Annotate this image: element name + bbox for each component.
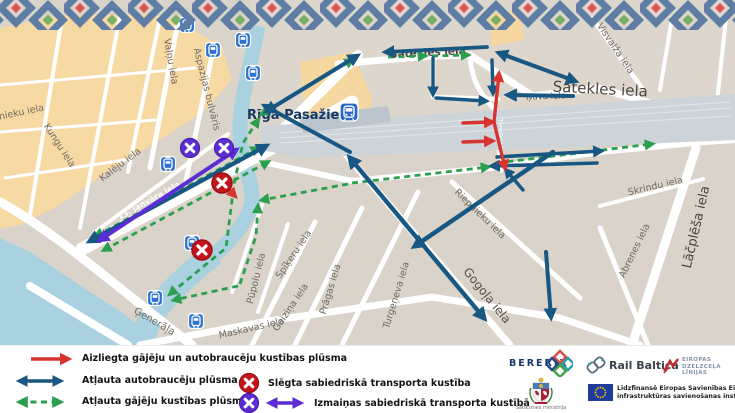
transport-change-icon bbox=[238, 392, 260, 413]
tram-stop-icon bbox=[206, 43, 221, 58]
latvia-coat-of-arms-icon bbox=[527, 376, 555, 404]
edzl-logo-text: EIROPAS DZELZCEĻA LĪNIJAS bbox=[682, 357, 721, 377]
allowed-pedestrian-arrow-sample bbox=[12, 395, 72, 409]
station-label: Rīga Pasažieru bbox=[247, 108, 355, 123]
train-station-icon bbox=[340, 103, 358, 121]
folk-pattern-banner bbox=[0, 0, 735, 30]
traffic-change-infographic: nieku iela Kungu iela Vaļņu iela Aspazij… bbox=[0, 0, 735, 413]
transport-change-icon bbox=[181, 139, 200, 158]
tram-stop-icon bbox=[246, 66, 261, 81]
legend-panel: Aizliegta gājēju un autobraucēju kustība… bbox=[0, 345, 735, 413]
restricted-flow-arrow-sample bbox=[28, 352, 78, 366]
edzl-swoosh-icon bbox=[662, 357, 679, 374]
legend-label-pedestrian: Atļauta gājēju kustības plūsma bbox=[82, 396, 248, 407]
map-canvas: nieku iela Kungu iela Vaļņu iela Aspazij… bbox=[0, 0, 735, 345]
rail-baltica-chain-icon bbox=[586, 356, 606, 376]
tram-stop-icon bbox=[189, 314, 204, 329]
eu-funding-line-1: Līdzfinansē Eiropas Savienības Eiropas bbox=[617, 385, 735, 393]
eu-funding-line-2: infrastruktūras savienošanas instruments bbox=[617, 393, 735, 401]
bererix-diamonds-icon bbox=[547, 349, 573, 377]
eu-flag-icon bbox=[588, 384, 613, 401]
tram-stop-icon bbox=[161, 157, 176, 172]
closed-transport-icon bbox=[212, 173, 232, 193]
edzl-line-3: LĪNIJAS bbox=[682, 370, 721, 377]
ministry-logo-caption: Satiksmes ministrija bbox=[506, 405, 576, 411]
legend-label-transit-change: Izmaiņas sabiedriskā transporta kustībā bbox=[314, 398, 530, 409]
tram-stop-icon bbox=[236, 33, 251, 48]
allowed-traffic-arrow-sample bbox=[12, 374, 72, 388]
legend-label-restricted: Aizliegta gājēju un autobraucēju kustība… bbox=[82, 353, 347, 364]
transit-change-arrow-sample bbox=[262, 396, 310, 410]
tram-stop-icon bbox=[148, 291, 163, 306]
legend-label-closed-transport: Slēgta sabiedriskā transporta kustība bbox=[268, 378, 471, 389]
eu-funding-text: Līdzfinansē Eiropas Savienības Eiropas i… bbox=[617, 385, 735, 400]
closed-transport-icon bbox=[192, 240, 212, 260]
transport-change-icon bbox=[215, 139, 234, 158]
legend-label-traffic: Atļauta autobraucēju plūsma bbox=[82, 375, 238, 386]
map-svg: nieku iela Kungu iela Vaļņu iela Aspazij… bbox=[0, 0, 735, 345]
closed-transport-icon bbox=[238, 372, 260, 394]
